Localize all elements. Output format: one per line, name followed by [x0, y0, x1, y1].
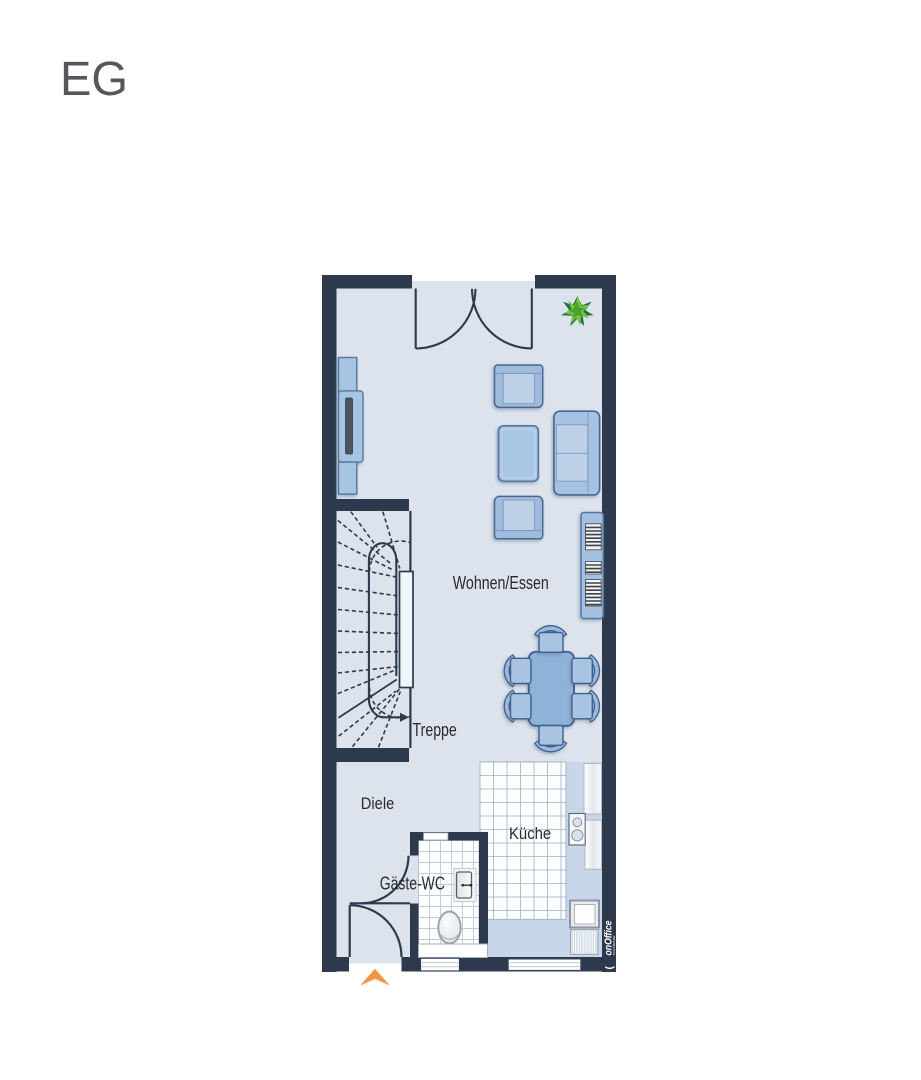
svg-text:EG: EG: [60, 53, 128, 106]
svg-text:Treppe: Treppe: [413, 720, 457, 740]
svg-text:Wohnen/Essen: Wohnen/Essen: [453, 573, 549, 593]
svg-text:Gäste-WC: Gäste-WC: [380, 873, 445, 893]
svg-text:Diele: Diele: [361, 794, 395, 813]
svg-text:Küche: Küche: [509, 824, 551, 843]
svg-text:SOFTWARE: SOFTWARE: [612, 934, 616, 955]
